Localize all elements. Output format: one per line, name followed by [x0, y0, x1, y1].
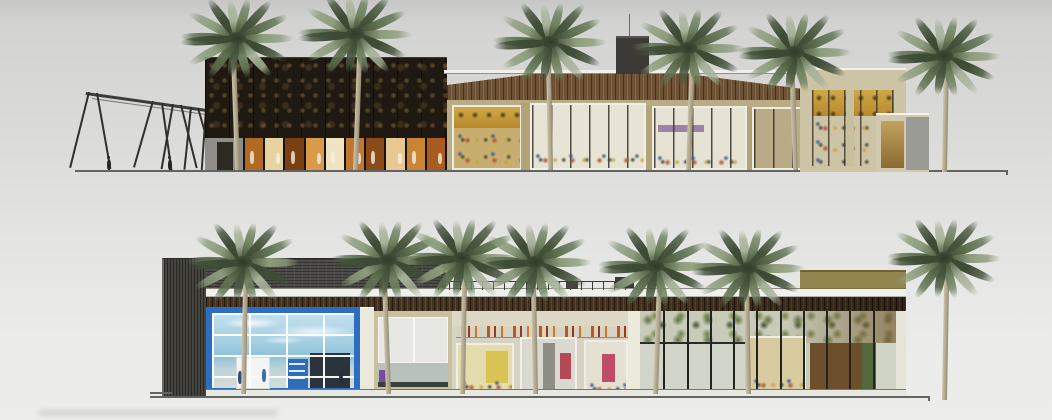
palm-tree: [183, 220, 303, 394]
palm-crown-center: [526, 256, 544, 268]
palm-tree: [475, 220, 595, 394]
palm-head: [688, 226, 808, 310]
palm-crown-center: [453, 252, 471, 264]
palm-crown-center: [379, 254, 397, 266]
palm-head: [183, 220, 303, 304]
palm-row-lower: [0, 0, 1052, 420]
palm-tree: [884, 216, 1004, 400]
palm-crown-center: [739, 262, 757, 274]
palm-crown-center: [935, 252, 953, 264]
architectural-rendering-canvas: [0, 0, 1052, 420]
palm-crown-center: [646, 260, 664, 272]
palm-head: [884, 216, 1004, 300]
lower-elevation: [0, 200, 1052, 420]
palm-crown-center: [234, 256, 252, 268]
palm-tree: [688, 226, 808, 394]
palm-head: [475, 220, 595, 304]
